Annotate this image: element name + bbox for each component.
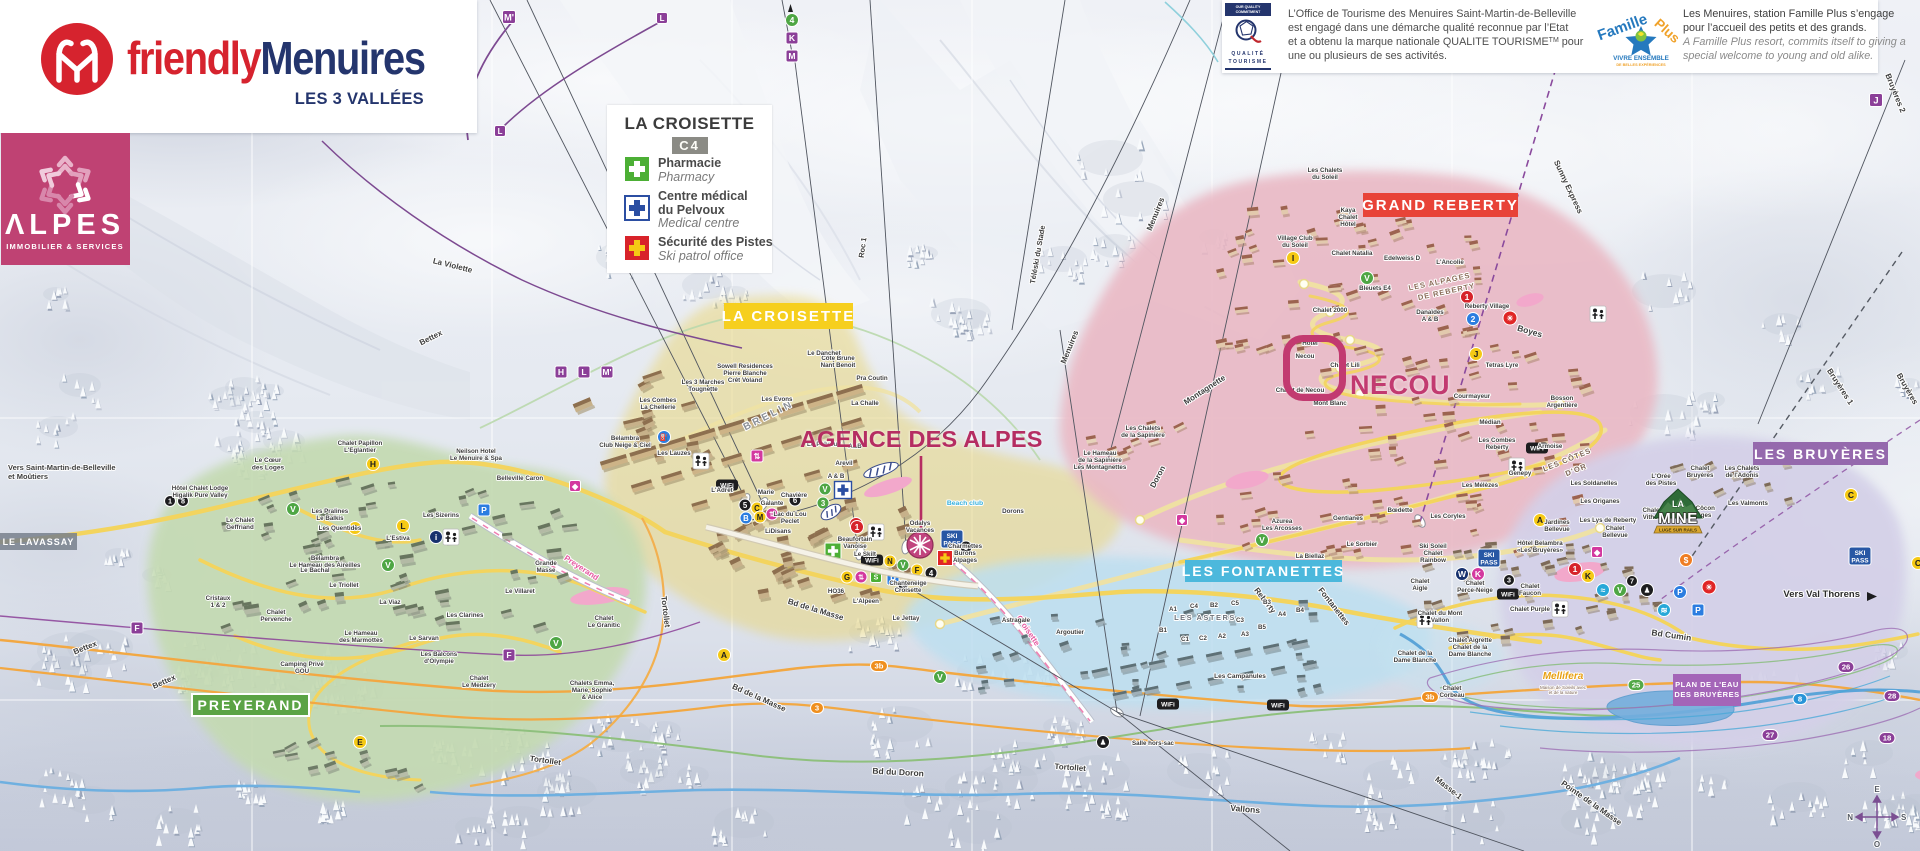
svg-text:Les PralinesLe Balkis: Les PralinesLe Balkis: [312, 508, 349, 522]
svg-text:Le Triollet: Le Triollet: [329, 582, 358, 589]
svg-text:2: 2: [1471, 314, 1476, 324]
svg-text:Chavière: Chavière: [781, 492, 808, 499]
svg-text:K: K: [789, 33, 796, 43]
svg-text:GrandeMasse: GrandeMasse: [535, 560, 557, 574]
svg-text:Les Soldanelles: Les Soldanelles: [1571, 480, 1618, 487]
svg-text:≋: ≋: [1660, 605, 1667, 615]
svg-text:Chalet de laDame Blanche: Chalet de laDame Blanche: [1394, 650, 1437, 664]
svg-text:LUGE SUR RAILS: LUGE SUR RAILS: [1659, 528, 1697, 533]
svg-text:8: 8: [1798, 695, 1803, 704]
svg-text:L'Ancolie: L'Ancolie: [1436, 259, 1464, 266]
svg-text:Le Cœurdes Loges: Le Cœurdes Loges: [252, 457, 285, 471]
svg-text:F: F: [134, 623, 139, 633]
svg-text:Les Chaletsdu Soleil: Les Chaletsdu Soleil: [1308, 167, 1343, 181]
svg-text:VIVRE ENSEMBLE: VIVRE ENSEMBLE: [1613, 55, 1669, 62]
svg-text:Le Jettay: Le Jettay: [893, 615, 920, 622]
svg-text:C1: C1: [1181, 636, 1189, 643]
svg-text:♟: ♟: [1644, 587, 1650, 595]
svg-text:☀: ☀: [1705, 583, 1712, 592]
svg-text:3: 3: [815, 704, 819, 713]
svg-text:C5: C5: [1231, 600, 1239, 607]
svg-text:Les Mélèzes: Les Mélèzes: [1462, 482, 1499, 489]
svg-text:M: M: [757, 513, 764, 522]
svg-text:L: L: [581, 367, 586, 377]
svg-text:I: I: [1292, 253, 1294, 263]
svg-text:WiFi: WiFi: [1271, 703, 1285, 710]
svg-text:Neilson HotelLe Menuire & Spa: Neilson HotelLe Menuire & Spa: [450, 448, 502, 462]
svg-text:B: B: [743, 514, 749, 523]
svg-text:C: C: [1848, 490, 1854, 500]
svg-text:H: H: [370, 459, 376, 469]
svg-text:Les Clarines: Les Clarines: [447, 612, 484, 619]
svg-text:Les Coryles: Les Coryles: [1430, 513, 1466, 520]
svg-text:A2: A2: [1218, 633, 1226, 640]
svg-text:A4: A4: [1278, 611, 1286, 618]
svg-text:PASS: PASS: [1851, 558, 1869, 565]
svg-text:Les Lauzes: Les Lauzes: [657, 450, 691, 457]
svg-text:28: 28: [1888, 692, 1897, 701]
svg-text:25: 25: [1632, 681, 1641, 690]
svg-text:C4: C4: [1190, 603, 1198, 610]
svg-text:F: F: [506, 650, 511, 660]
svg-text:Reberty Village: Reberty Village: [1465, 303, 1510, 310]
svg-text:Hôtel Chalet LodgeHigalik: Hôtel Chalet LodgeHigalik Pure Valley: [172, 485, 229, 499]
svg-text:Chalet 2000: Chalet 2000: [1313, 307, 1348, 314]
svg-text:V: V: [900, 561, 906, 570]
svg-text:1: 1: [1573, 564, 1578, 574]
svg-text:Le Villaret: Le Villaret: [505, 588, 534, 595]
svg-text:V: V: [1259, 535, 1265, 545]
svg-text:ΛLPES: ΛLPES: [5, 209, 125, 241]
svg-text:WiFi: WiFi: [865, 558, 879, 565]
svg-text:K: K: [1475, 569, 1482, 579]
svg-text:J: J: [1474, 349, 1479, 359]
svg-text:C: C: [1915, 558, 1920, 568]
svg-text:M: M: [788, 51, 795, 61]
svg-text:Le Danchet: Le Danchet: [807, 350, 840, 357]
svg-text:Vers Val Thorens: Vers Val Thorens: [1783, 589, 1860, 600]
svg-text:HO36: HO36: [828, 588, 845, 595]
svg-text:18: 18: [1883, 734, 1892, 743]
svg-text:Les Chaletsde l'Adonis: Les Chaletsde l'Adonis: [1725, 465, 1760, 479]
svg-text:Bœdette: Bœdette: [1387, 507, 1413, 514]
svg-text:H: H: [558, 367, 564, 377]
svg-text:3b: 3b: [875, 662, 884, 671]
svg-text:4: 4: [790, 15, 795, 25]
svg-text:3: 3: [1507, 576, 1511, 585]
svg-text:Plus: Plus: [1652, 16, 1683, 46]
svg-text:JardinesBellevue: JardinesBellevue: [1544, 519, 1570, 533]
svg-text:F: F: [915, 566, 920, 575]
svg-text:Le Sarvan: Le Sarvan: [409, 635, 439, 642]
svg-text:WiFi: WiFi: [1501, 592, 1515, 599]
svg-text:Salle hors-sac: Salle hors-sac: [1132, 740, 1175, 747]
svg-text:26: 26: [1842, 663, 1851, 672]
svg-text:J: J: [1873, 94, 1878, 105]
svg-text:1: 1: [855, 522, 860, 532]
svg-text:B1: B1: [1159, 627, 1167, 634]
svg-text:P: P: [1695, 605, 1701, 615]
svg-text:7: 7: [1630, 577, 1634, 586]
svg-text:La Challe: La Challe: [851, 400, 879, 407]
svg-text:S: S: [1901, 813, 1907, 822]
svg-text:Pra Coutin: Pra Coutin: [856, 375, 888, 382]
svg-text:Astragale: Astragale: [1002, 617, 1031, 624]
svg-text:Edelweiss D: Edelweiss D: [1384, 255, 1421, 262]
svg-text:1: 1: [1465, 292, 1470, 302]
svg-text:Les Sizerins: Les Sizerins: [423, 512, 460, 519]
svg-text:27: 27: [1766, 731, 1775, 740]
svg-text:LA: LA: [1672, 499, 1684, 509]
svg-text:Chalet AigretteChalet de laDam: Chalet AigretteChalet de laDame Blanche: [1448, 637, 1492, 658]
svg-text:Tetras Lyre: Tetras Lyre: [1486, 362, 1519, 369]
svg-text:Arevil: Arevil: [835, 460, 852, 467]
svg-text:Mellifera: Mellifera: [1543, 671, 1584, 682]
svg-text:SKI: SKI: [1855, 550, 1866, 557]
svg-text:A & B: A & B: [828, 473, 845, 480]
svg-text:Armoise: Armoise: [1538, 443, 1563, 450]
svg-text:KayaChaletHôtel: KayaChaletHôtel: [1339, 207, 1358, 228]
svg-text:G: G: [844, 573, 850, 582]
svg-text:V: V: [553, 638, 559, 648]
svg-text:Les Chaletsde la Sapinière: Les Chaletsde la Sapinière: [1121, 425, 1165, 439]
svg-text:E: E: [1874, 785, 1880, 794]
svg-text:Le ChaletGeffriand: Le ChaletGeffriand: [226, 517, 254, 531]
svg-text:$: $: [1684, 555, 1689, 565]
svg-text:Galante: Galante: [761, 500, 784, 507]
svg-text:V: V: [1364, 273, 1370, 283]
svg-text:i: i: [435, 532, 437, 542]
svg-text:A3: A3: [1241, 631, 1249, 638]
svg-text:ChaletBellevue: ChaletBellevue: [1602, 525, 1628, 539]
svg-text:V: V: [937, 672, 943, 682]
svg-text:P: P: [481, 505, 487, 515]
svg-text:Genepy: Genepy: [1509, 470, 1532, 477]
svg-text:Les Origanes: Les Origanes: [1580, 498, 1620, 505]
svg-text:A: A: [721, 650, 727, 660]
svg-text:L: L: [400, 521, 405, 531]
svg-text:WiFi: WiFi: [1161, 702, 1175, 709]
svg-text:Chalet Natalia: Chalet Natalia: [1332, 250, 1373, 257]
svg-text:5: 5: [743, 501, 748, 510]
svg-text:Médian: Médian: [1479, 419, 1501, 426]
svg-text:♟: ♟: [1100, 739, 1106, 747]
svg-text:N: N: [887, 557, 893, 566]
svg-text:C3: C3: [1236, 617, 1244, 624]
svg-text:P: P: [1677, 587, 1683, 597]
svg-text:3b: 3b: [1426, 693, 1435, 702]
svg-text:Les Balconsd'Olympie: Les Balconsd'Olympie: [421, 651, 458, 665]
svg-text:Dorons: Dorons: [1002, 508, 1024, 515]
svg-text:V: V: [385, 560, 391, 570]
svg-text:⇅: ⇅: [858, 574, 864, 582]
svg-text:M': M': [602, 367, 611, 377]
svg-text:Les Campanules: Les Campanules: [1214, 673, 1266, 680]
svg-text:Côte BruneNant Benoit: Côte BruneNant Benoit: [821, 355, 856, 369]
svg-text:B4: B4: [1296, 607, 1304, 614]
svg-text:ChaletAigle: ChaletAigle: [1411, 578, 1430, 592]
svg-text:V: V: [822, 485, 828, 494]
svg-text:Le Hameaudes Marmottes: Le Hameaudes Marmottes: [339, 630, 383, 644]
svg-text:Les Valmonts: Les Valmonts: [1728, 500, 1768, 507]
svg-text:M': M': [504, 11, 514, 22]
svg-text:L: L: [660, 14, 665, 23]
svg-text:Gentianes: Gentianes: [1333, 515, 1363, 522]
svg-text:B2: B2: [1210, 602, 1218, 609]
svg-text:Village Clubdu Soleil: Village Clubdu Soleil: [1277, 235, 1313, 249]
svg-text:B3: B3: [1263, 599, 1271, 606]
svg-text:ChaletCorbeau: ChaletCorbeau: [1439, 685, 1464, 699]
svg-text:Les Evons: Les Evons: [762, 396, 794, 403]
svg-text:L'Alpeen: L'Alpeen: [853, 598, 879, 605]
svg-text:Chalet Purple: Chalet Purple: [1510, 606, 1550, 613]
svg-text:K: K: [1585, 571, 1592, 581]
svg-text:S: S: [874, 575, 879, 582]
svg-text:Bleuets E4: Bleuets E4: [1359, 285, 1391, 292]
svg-text:BossonArgentière: BossonArgentière: [1547, 395, 1579, 409]
svg-text:⛽: ⛽: [660, 433, 669, 442]
svg-text:Mont Blanc: Mont Blanc: [1313, 400, 1347, 407]
svg-text:A1: A1: [1169, 606, 1177, 613]
svg-text:SKI: SKI: [947, 533, 958, 540]
svg-text:ChaletFaucon: ChaletFaucon: [1519, 583, 1541, 597]
svg-text:Argoutier: Argoutier: [1056, 629, 1084, 636]
svg-text:⇅: ⇅: [754, 452, 761, 461]
svg-text:O: O: [1874, 840, 1880, 849]
svg-text:La Biellaz: La Biellaz: [1296, 553, 1325, 560]
svg-text:MINE: MINE: [1658, 510, 1698, 527]
svg-text:◆: ◆: [1593, 548, 1601, 557]
svg-text:Beach club: Beach club: [947, 500, 983, 507]
svg-text:SKI: SKI: [1484, 552, 1495, 559]
svg-text:B5: B5: [1258, 624, 1266, 631]
svg-text:Hôtel Belambra«Les Bruyères»: Hôtel Belambra«Les Bruyères»: [1517, 540, 1564, 554]
svg-text:L'Estiva: L'Estiva: [386, 535, 410, 542]
svg-text:Les Quentides: Les Quentides: [319, 525, 362, 532]
svg-text:IMMOBILIER & SERVICES: IMMOBILIER & SERVICES: [6, 242, 124, 251]
svg-text:LiDisans: LiDisans: [765, 528, 791, 535]
svg-text:Le Sorbier: Le Sorbier: [1347, 541, 1378, 548]
svg-text:V: V: [290, 504, 296, 514]
svg-text:Marie: Marie: [758, 489, 775, 496]
svg-text:Les CombesLa Chellerie: Les CombesLa Chellerie: [640, 397, 677, 411]
svg-text:◆: ◆: [1178, 516, 1186, 525]
svg-text:Les Lys de Reberty: Les Lys de Reberty: [1580, 517, 1637, 524]
svg-text:L'Adret: L'Adret: [711, 487, 732, 494]
svg-text:W: W: [1458, 569, 1467, 579]
svg-text:E: E: [357, 737, 363, 747]
svg-text:V: V: [1617, 585, 1623, 595]
svg-text:Chalet PapillonL'Eglantier: Chalet PapillonL'Eglantier: [338, 440, 383, 454]
svg-text:Belleville Caron: Belleville Caron: [497, 475, 544, 482]
svg-text:1: 1: [168, 497, 172, 506]
svg-text:La Viaz: La Viaz: [379, 599, 400, 606]
svg-text:≈: ≈: [1601, 585, 1606, 595]
svg-text:Le Skilt: Le Skilt: [854, 551, 876, 558]
svg-text:PASS: PASS: [1480, 560, 1498, 567]
svg-text:3: 3: [821, 499, 826, 508]
svg-text:Courmayeur: Courmayeur: [1454, 393, 1491, 400]
svg-text:LES ASTERS: LES ASTERS: [1174, 613, 1236, 622]
svg-text:☀: ☀: [1506, 314, 1513, 323]
svg-text:◆: ◆: [571, 482, 579, 491]
svg-text:L: L: [498, 127, 503, 136]
svg-text:A: A: [1537, 515, 1543, 525]
svg-text:Le Bachal: Le Bachal: [300, 567, 330, 574]
svg-text:N: N: [1847, 813, 1853, 822]
svg-text:C2: C2: [1199, 635, 1207, 642]
svg-text:DE BELLES EXPÉRIENCES: DE BELLES EXPÉRIENCES: [1616, 62, 1666, 67]
